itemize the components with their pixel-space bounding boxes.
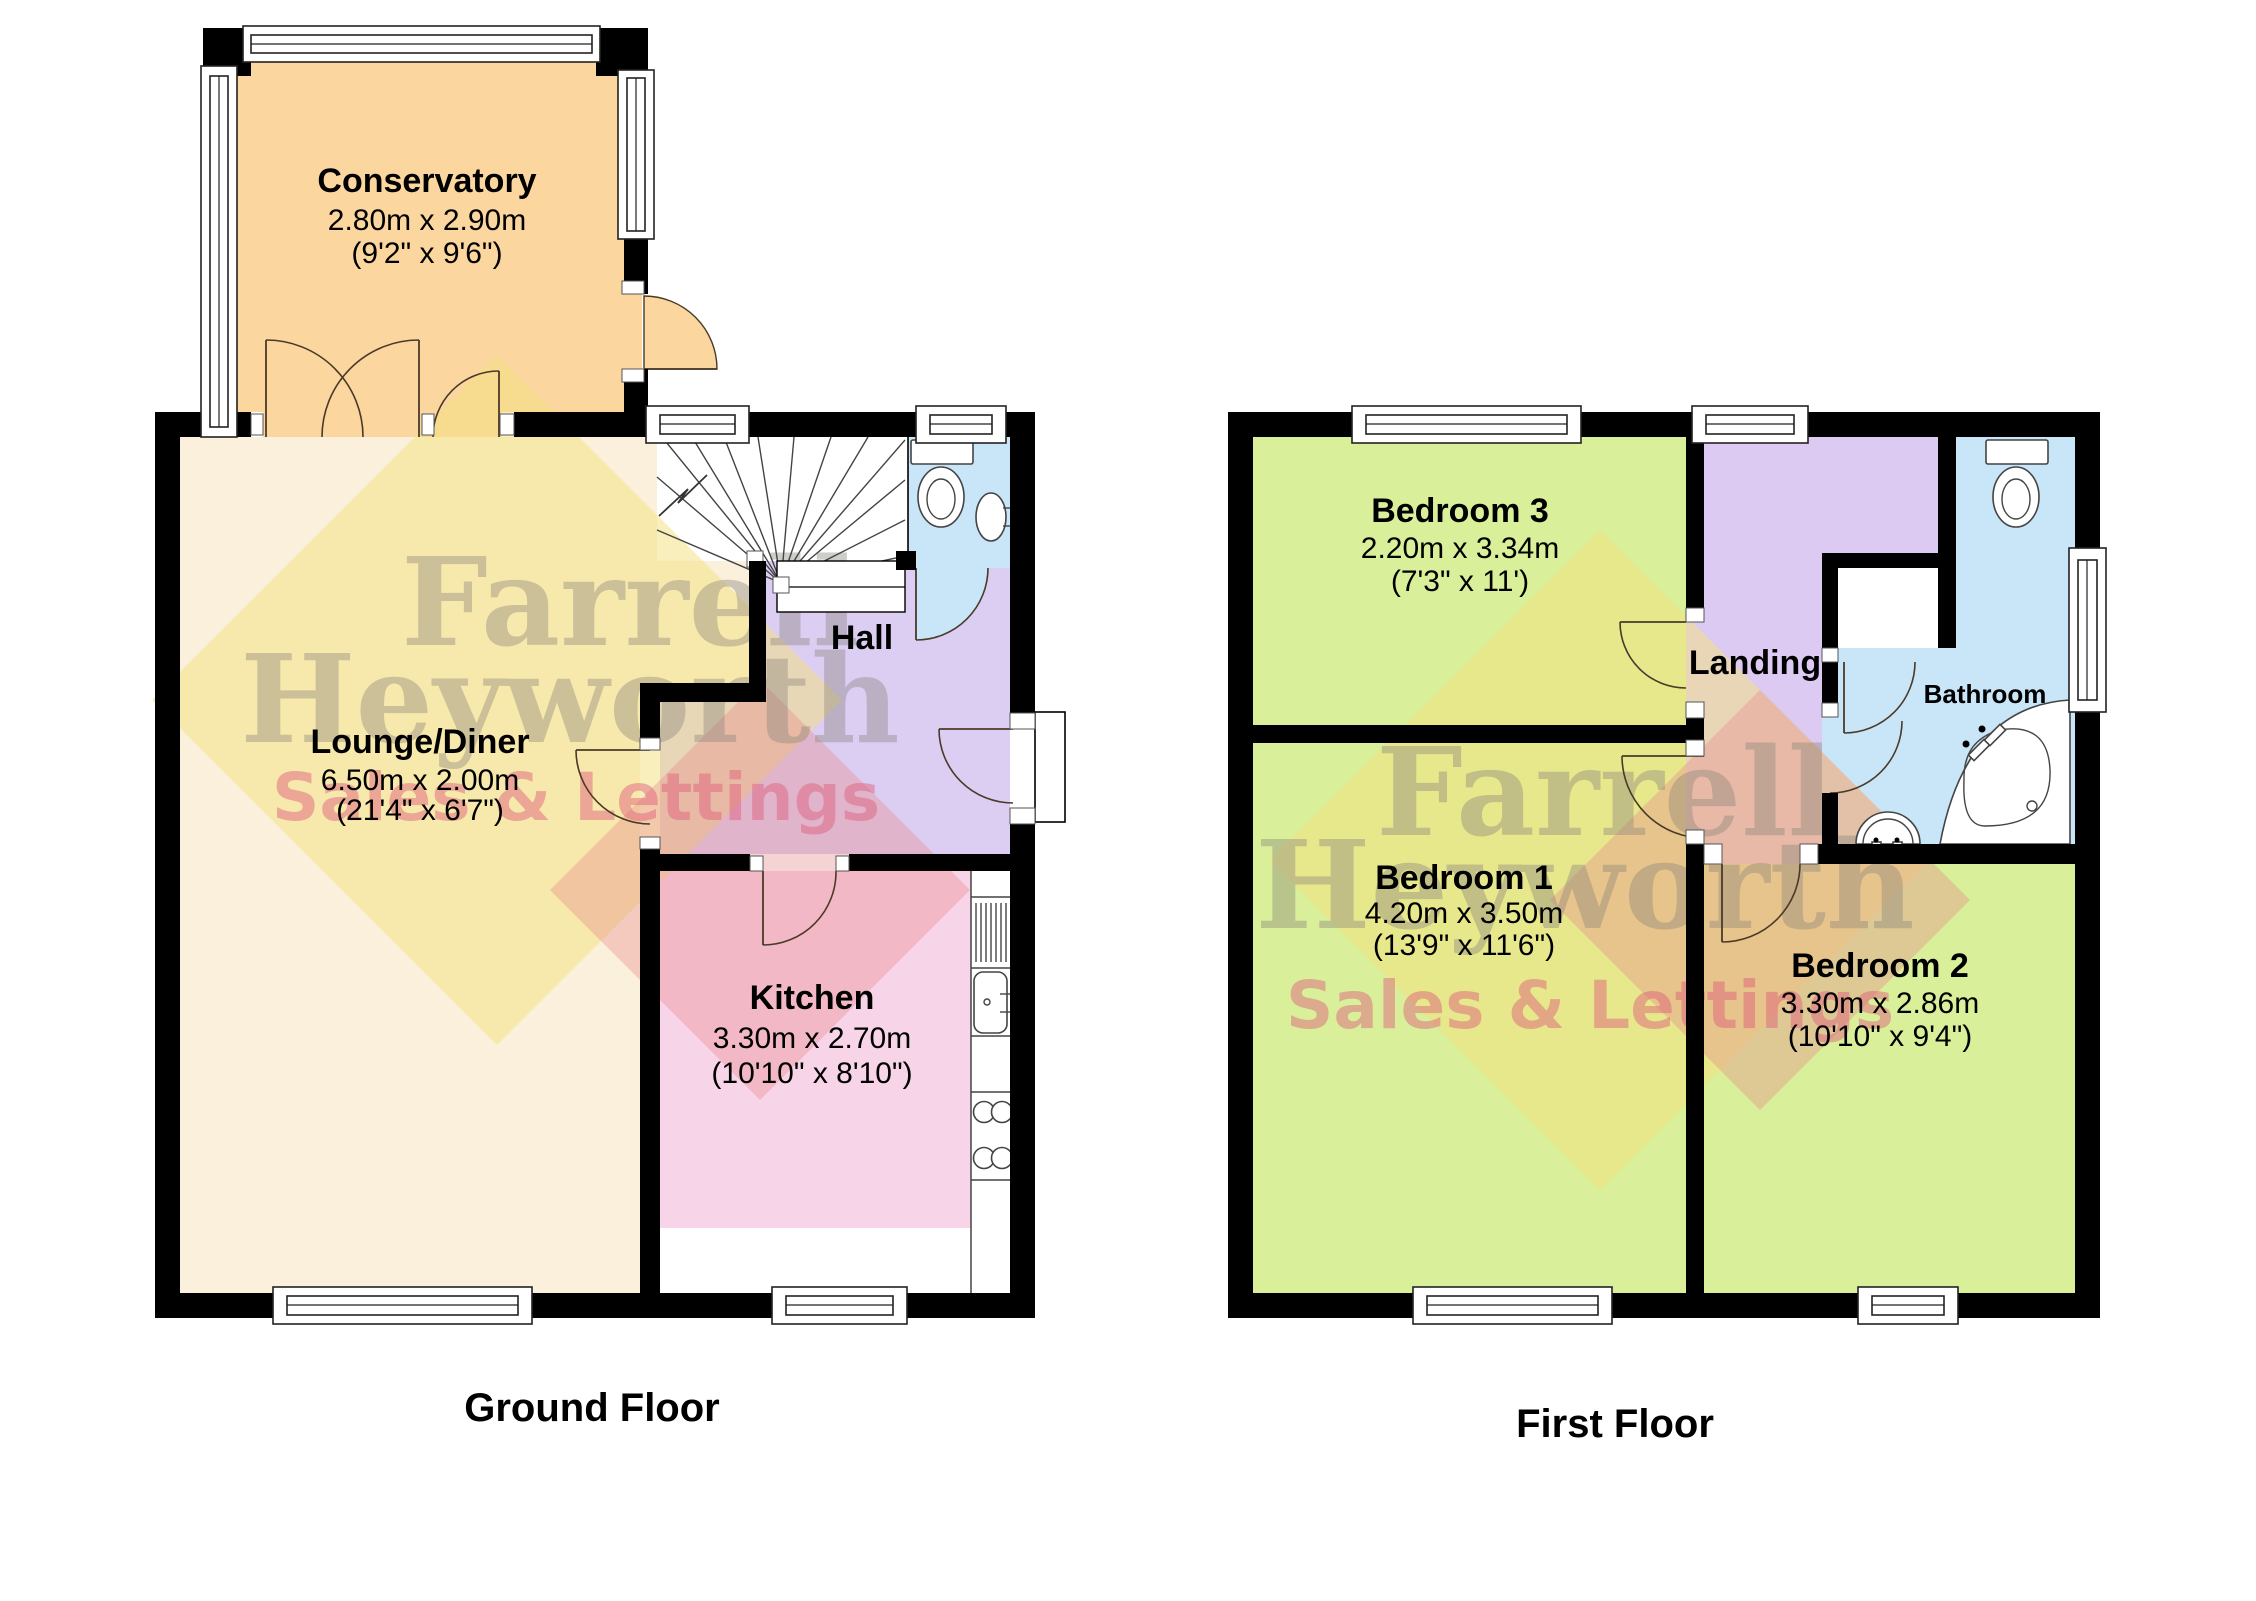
conservatory-side-opening-fill (624, 294, 642, 369)
conservatory-imperial: (9'2" x 9'6") (351, 237, 502, 270)
lounge-metric: 6.50m x 2.00m (321, 764, 519, 797)
bedroom3-imperial: (7'3" x 11') (1391, 565, 1529, 598)
window-conservatory-left (201, 66, 237, 437)
bathroom-toilet-cistern (1986, 440, 2048, 464)
bedroom3-label: Bedroom 3 (1371, 492, 1549, 530)
lounge-label: Lounge/Diner (310, 723, 529, 761)
floor-plan: Farrell Heyworth Sales & Lettings (0, 0, 2256, 1601)
bedroom2-imperial: (10'10" x 9'4") (1788, 1020, 1973, 1053)
conservatory-exterior-door-swing (644, 296, 717, 369)
landing-label: Landing (1689, 644, 1821, 682)
landing-floor (1704, 437, 1938, 553)
ground-floor-title: Ground Floor (464, 1386, 720, 1430)
cupboard-floor (1838, 568, 1938, 648)
watermark-text-heyworth-2: Heyworth (1255, 813, 1915, 957)
first-floor-title: First Floor (1516, 1402, 1714, 1446)
first-floor-plan: Farrell Heyworth Sales & Lettings (1228, 406, 2106, 1446)
window-conservatory-right (618, 70, 654, 239)
window-conservatory-top (243, 26, 600, 62)
stairs-newel-post-2 (773, 577, 789, 593)
conservatory-metric: 2.80m x 2.90m (328, 204, 526, 237)
window-bedroom2-bottom (1858, 1287, 1958, 1324)
kitchen-lower-area (660, 1228, 971, 1293)
bedroom1-imperial: (13'9" x 11'6") (1373, 929, 1555, 962)
conservatory-corner-ne (596, 28, 648, 76)
kitchen-imperial: (10'10" x 8'10") (711, 1057, 912, 1090)
lounge-imperial: (21'4" x 6'7") (336, 794, 504, 827)
window-bedroom1-bottom (1413, 1287, 1612, 1324)
window-bedroom3-top (1352, 406, 1581, 443)
bedroom2-label: Bedroom 2 (1791, 947, 1969, 985)
window-stairs-top (646, 406, 749, 443)
window-kitchen-bottom (772, 1287, 907, 1324)
wc-sink (976, 493, 1006, 541)
window-wc-top (916, 406, 1006, 443)
kitchen-drainer (976, 903, 1006, 962)
bathroom-toilet-bowl (1993, 467, 2039, 527)
kitchen-metric: 3.30m x 2.70m (713, 1022, 911, 1055)
wc-toilet-bowl (918, 467, 964, 527)
floorplan-page: Farrell Heyworth Sales & Lettings (0, 0, 2256, 1601)
bedroom2-metric: 3.30m x 2.86m (1781, 987, 1979, 1020)
front-door-step (1035, 712, 1065, 822)
window-bathroom-right (2069, 548, 2106, 712)
hall-label: Hall (831, 619, 893, 657)
bathroom-label: Bathroom (1924, 679, 2047, 709)
conservatory-label: Conservatory (317, 162, 536, 200)
bedroom1-label: Bedroom 1 (1375, 859, 1553, 897)
bedroom3-metric: 2.20m x 3.34m (1361, 532, 1559, 565)
bedroom1-metric: 4.20m x 3.50m (1365, 897, 1563, 930)
kitchen-label: Kitchen (750, 979, 875, 1017)
ground-floor-plan: Farrell Heyworth Sales & Lettings (152, 26, 1065, 1430)
window-landing-top (1692, 406, 1808, 443)
window-lounge-bottom (273, 1287, 532, 1324)
